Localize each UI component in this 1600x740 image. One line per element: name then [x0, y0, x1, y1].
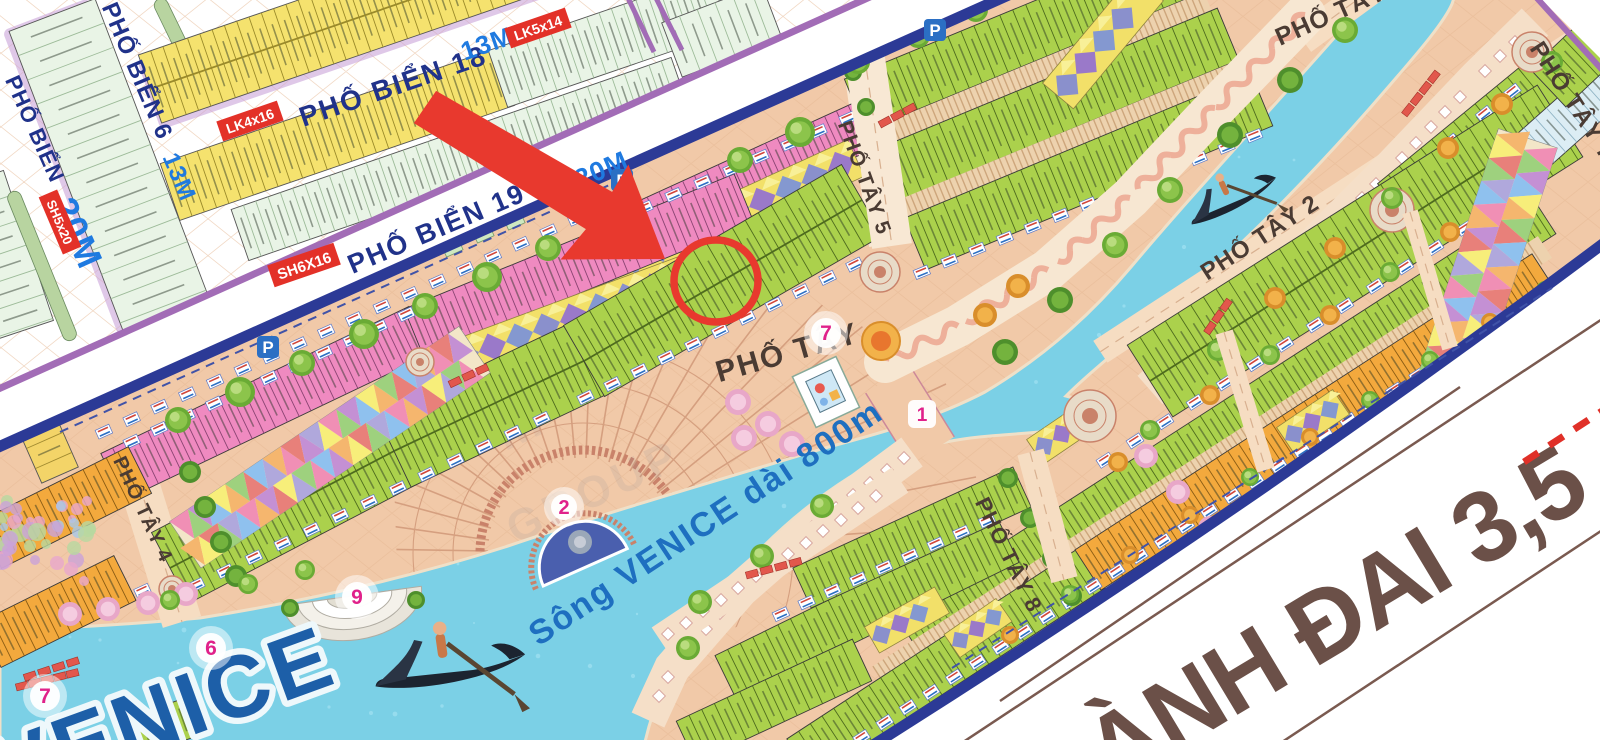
svg-text:2: 2 [558, 497, 569, 519]
svg-text:1: 1 [917, 405, 928, 426]
svg-text:9: 9 [351, 586, 363, 609]
svg-text:6: 6 [205, 637, 217, 660]
svg-text:7: 7 [820, 322, 832, 345]
svg-text:7: 7 [39, 685, 51, 708]
svg-text:P: P [929, 21, 940, 40]
svg-text:P: P [262, 338, 273, 357]
